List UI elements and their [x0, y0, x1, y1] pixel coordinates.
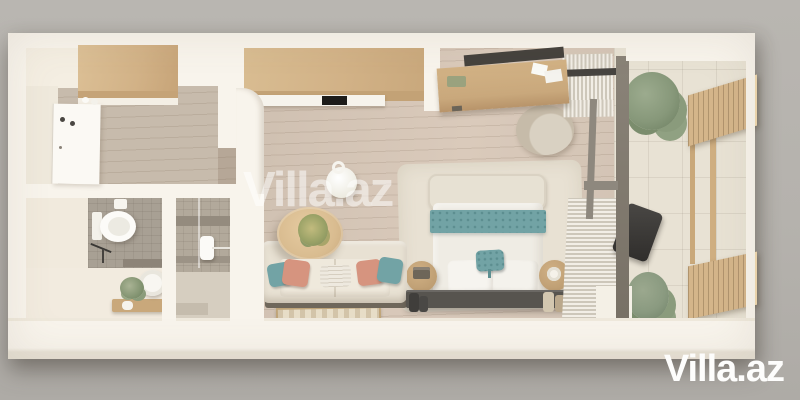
bed-tie-detail [488, 269, 491, 278]
watermark-text: Villa.az [243, 162, 392, 218]
toilet-flush-plate [114, 199, 127, 209]
bathroom-corner-wall [24, 194, 88, 268]
bathroom-towel-rail-2 [102, 249, 104, 263]
entry-door [51, 104, 100, 185]
floor-vase-dark-2 [419, 296, 428, 312]
wall-right [746, 33, 755, 359]
sofa-pillow-center [320, 264, 352, 287]
sofa-pillow-salmon-left [281, 258, 310, 287]
tray-towel-roll [122, 301, 133, 310]
toilet-seat [108, 217, 130, 236]
bed-runner-teal [430, 210, 546, 233]
sofa-pillow-teal-right [376, 256, 404, 284]
coffee-table-plant [298, 214, 328, 246]
vanity-plant [120, 277, 144, 299]
curtain-top [562, 54, 613, 118]
desk-drawer-pull [452, 106, 462, 112]
entry-floor-item [82, 97, 89, 103]
door-handle [60, 117, 65, 122]
wall-entry-bath [8, 184, 240, 198]
door-keyhole [59, 146, 62, 149]
entry-floor-item-2 [91, 99, 98, 105]
floor-plan-render: Villa.az Villa.az [0, 0, 800, 400]
door-handle-2 [70, 121, 75, 126]
balcony-plant-bottom [627, 272, 669, 320]
tv-shelf [257, 95, 385, 106]
balcony-frame-post-2 [710, 127, 716, 266]
tv-screen [322, 96, 347, 105]
floor-vase-dark [409, 293, 419, 312]
brand-logo-text: Villa.az [664, 348, 784, 391]
entry-wardrobe-front [78, 91, 178, 98]
nightstand-right-candle [547, 267, 561, 281]
entry-corner-wall [24, 45, 80, 88]
shower-bench [174, 303, 208, 315]
shower-tile-band [174, 216, 234, 226]
window-frame-transom [584, 181, 618, 190]
shower-floor [174, 272, 234, 324]
vanity-tray [112, 299, 164, 312]
desk-notebook [447, 76, 466, 87]
entry-wardrobe [78, 45, 178, 91]
balcony-plant-top [624, 72, 680, 130]
balcony-frame-post [690, 131, 695, 264]
vanity-counter [123, 259, 166, 267]
wall-balcony-top [626, 33, 755, 61]
window-frame-post [616, 56, 629, 344]
floor-vase-beige [543, 292, 554, 312]
tv-cabinet [240, 45, 426, 91]
wall-bottom [8, 318, 755, 359]
wall-bath-shower-divider [162, 190, 176, 324]
nightstand-left-books [413, 267, 430, 279]
